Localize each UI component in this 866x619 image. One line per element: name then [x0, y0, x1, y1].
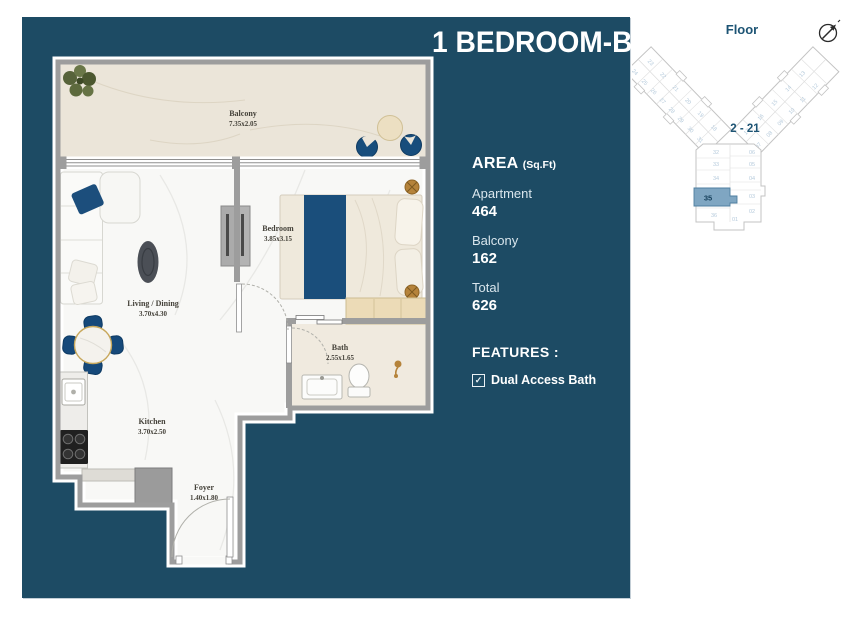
- cooktop: [60, 430, 88, 464]
- fridge: [135, 468, 172, 503]
- bed: [280, 195, 424, 299]
- area-row-label: Apartment: [472, 186, 624, 201]
- bath-left-wall: [286, 362, 292, 408]
- unit-number: 06: [749, 150, 755, 156]
- area-row-label: Total: [472, 280, 624, 295]
- area-heading: AREA (Sq.Ft): [472, 155, 624, 173]
- unit-number: 03: [749, 194, 755, 200]
- bath-sink: [302, 375, 342, 399]
- toilet: [348, 364, 370, 397]
- unit-number: 05: [749, 162, 755, 168]
- area-row-apartment: Apartment 464: [472, 186, 624, 220]
- room-dims-balcony: 7.35x2.05: [229, 120, 258, 128]
- floor-range: 2 - 21: [730, 123, 760, 135]
- key-plan-left-wing: 23 22 21 20 19 18 24 25 26 27 28 29 30 3…: [632, 44, 734, 157]
- feature-label: Dual Access Bath: [491, 373, 596, 387]
- checkbox-icon: ✓: [472, 374, 485, 387]
- key-plan-right-wing: 17 16 15 14 13 07 08 09 10 11 12: [730, 44, 842, 157]
- features-heading: FEATURES :: [472, 344, 624, 360]
- north-arrow-icon: [820, 20, 841, 42]
- wall-sconce: [405, 285, 419, 299]
- balcony-table: [378, 116, 403, 141]
- kitchen-sink: [62, 379, 85, 405]
- area-row-value: 626: [472, 297, 624, 314]
- unit-number: 02: [749, 209, 755, 215]
- room-label-kitchen: Kitchen: [138, 417, 166, 426]
- key-plan-stem: 32 33 34 36 06 05 04 03 02 01 35: [694, 144, 765, 230]
- partition-wall: [234, 168, 240, 282]
- unit-number: 01: [732, 217, 738, 223]
- key-plan: Floor 23 22 21 20 19 18 24 25 26: [632, 8, 866, 243]
- room-label-living: Living / Dining: [127, 299, 179, 308]
- area-row-value: 162: [472, 250, 624, 267]
- unit-number: 34: [713, 176, 719, 182]
- key-plan-title: Floor: [726, 22, 759, 37]
- feature-dual-access-bath: ✓ Dual Access Bath: [472, 373, 624, 387]
- room-dims-bath: 2.55x1.65: [326, 354, 355, 362]
- wall-sconce: [405, 180, 419, 194]
- unit-number: 33: [713, 162, 719, 168]
- room-label-balcony: Balcony: [229, 109, 257, 118]
- room-dims-living: 3.70x4.30: [139, 310, 168, 318]
- room-label-foyer: Foyer: [194, 483, 214, 492]
- bath-top-wall: [342, 318, 428, 324]
- room-dims-bedroom: 3.85x3.15: [264, 235, 293, 243]
- unit-number: 32: [713, 150, 719, 156]
- area-heading-text: AREA: [472, 155, 518, 172]
- pouf: [138, 241, 159, 283]
- unit-number: 36: [711, 213, 717, 219]
- room-label-bath: Bath: [332, 343, 349, 352]
- area-panel: AREA (Sq.Ft) Apartment 464 Balcony 162 T…: [472, 155, 624, 387]
- room-dims-foyer: 1.40x1.80: [190, 494, 219, 502]
- area-row-balcony: Balcony 162: [472, 233, 624, 267]
- sliding-door: [61, 157, 426, 170]
- area-row-total: Total 626: [472, 280, 624, 314]
- area-row-value: 464: [472, 203, 624, 220]
- room-dims-kitchen: 3.70x2.50: [138, 428, 167, 436]
- area-row-label: Balcony: [472, 233, 624, 248]
- page: { "title": "1 BEDROOM-B", "area_panel": …: [0, 0, 866, 619]
- bed-runner: [304, 195, 346, 299]
- highlighted-unit-number: 35: [704, 194, 712, 203]
- room-label-bedroom: Bedroom: [262, 224, 294, 233]
- area-heading-unit: (Sq.Ft): [523, 159, 556, 171]
- unit-number: 04: [749, 176, 755, 182]
